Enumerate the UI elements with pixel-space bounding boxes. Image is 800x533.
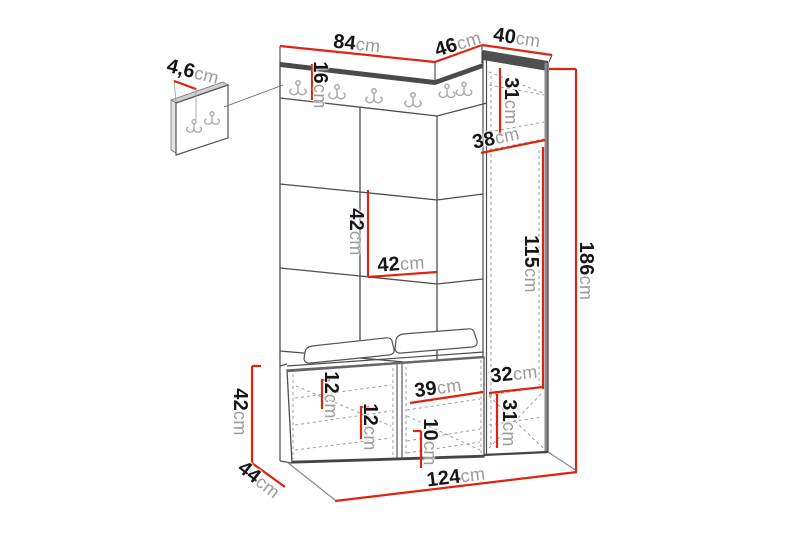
dim-label-bench-height: 42cm [230, 388, 250, 435]
dim-value: 186 [575, 242, 597, 276]
dim-label-total-height: 186cm [576, 242, 596, 301]
dim-value: 39 [413, 377, 438, 402]
dim-unit: cm [346, 231, 366, 256]
dim-value: 32 [489, 363, 514, 387]
dim-unit: cm [576, 276, 596, 301]
dim-label-hook-rail-height: 16cm [310, 61, 330, 108]
dim-unit: cm [436, 375, 463, 398]
dim-unit: cm [321, 394, 341, 419]
bench-cushions [304, 329, 477, 363]
dim-unit: cm [399, 252, 425, 274]
inset-panel [171, 80, 283, 155]
dim-label-bench-shelf-left: 12cm [321, 371, 341, 418]
dim-value: 12 [320, 371, 342, 394]
dim-value: 10 [419, 418, 441, 441]
dim-label-panel-tile-height: 42cm [346, 208, 366, 255]
dim-value: 40 [492, 24, 517, 49]
dim-label-cabinet-top-section: 31cm [501, 77, 521, 124]
dim-label-cabinet-bottom-section: 31cm [499, 399, 519, 446]
dim-value: 42 [377, 253, 401, 277]
dim-unit: cm [360, 426, 380, 451]
dim-value: 31 [498, 399, 520, 422]
dim-unit: cm [515, 28, 542, 51]
dim-label-cabinet-middle-section: 115cm [521, 235, 541, 293]
dim-label-panel-tile-width: 42cm [377, 252, 426, 275]
dim-label-bench-shelf-right: 10cm [420, 418, 440, 465]
dim-unit: cm [420, 441, 440, 466]
dim-value: 12 [359, 403, 381, 426]
dim-value: 31 [500, 77, 522, 100]
dim-value: 42 [229, 388, 251, 411]
dim-label-bench-shelf-middle: 12cm [360, 403, 380, 450]
dim-value: 16 [309, 61, 331, 84]
inset-leader-line [224, 85, 283, 107]
dim-unit: cm [512, 362, 539, 384]
dim-value: 42 [345, 208, 367, 231]
dim-unit: cm [310, 84, 330, 109]
dimension-diagram: 4,6cm84cm46cm40cm16cm31cm38cm42cm42cm115… [0, 0, 800, 533]
dim-line-cabinet-lower-section [489, 387, 543, 393]
dim-unit: cm [521, 268, 541, 293]
dim-value: 84 [332, 31, 357, 55]
dim-value: 115 [520, 235, 542, 268]
dim-unit: cm [501, 100, 521, 125]
dim-unit: cm [459, 463, 486, 486]
dim-unit: cm [230, 411, 250, 436]
dim-unit: cm [355, 34, 382, 56]
dim-label-top-width-left: 84cm [332, 32, 381, 57]
dim-unit: cm [499, 422, 519, 447]
dim-value: 124 [425, 466, 461, 492]
